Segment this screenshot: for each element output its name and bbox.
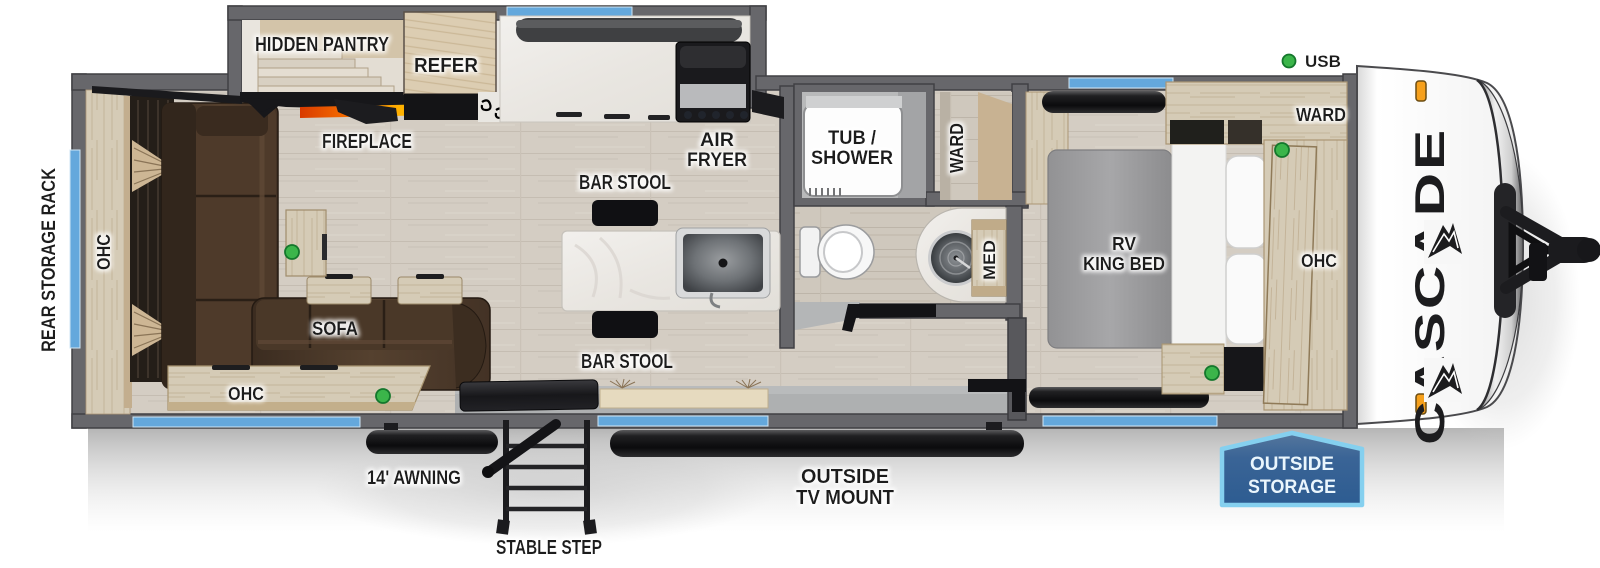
svg-text:OHC: OHC — [1301, 251, 1337, 271]
svg-text:BAR STOOL: BAR STOOL — [581, 351, 673, 373]
svg-text:STORAGE: STORAGE — [1248, 477, 1336, 498]
svg-text:BAR STOOL: BAR STOOL — [579, 172, 671, 194]
svg-text:WARD: WARD — [1296, 105, 1346, 125]
svg-text:14' AWNING: 14' AWNING — [367, 468, 461, 489]
svg-text:TUB /: TUB / — [828, 128, 877, 149]
svg-text:OHC: OHC — [228, 384, 264, 404]
svg-text:REFER: REFER — [414, 55, 479, 77]
svg-text:OUTSIDE: OUTSIDE — [1250, 454, 1334, 475]
svg-text:REAR STORAGE RACK: REAR STORAGE RACK — [39, 168, 60, 352]
svg-text:STABLE STEP: STABLE STEP — [496, 537, 602, 559]
svg-text:AIR: AIR — [700, 130, 734, 151]
svg-text:TV MOUNT: TV MOUNT — [796, 487, 894, 509]
svg-text:RV: RV — [1112, 234, 1136, 254]
svg-text:USB: USB — [1305, 52, 1341, 71]
svg-text:KING BED: KING BED — [1083, 254, 1165, 274]
svg-text:FRYER: FRYER — [687, 150, 747, 171]
svg-text:SHOWER: SHOWER — [811, 148, 893, 169]
svg-text:OHC: OHC — [94, 234, 114, 270]
svg-text:MED: MED — [980, 240, 999, 280]
svg-text:HIDDEN PANTRY: HIDDEN PANTRY — [255, 34, 390, 56]
svg-text:WARD: WARD — [947, 123, 967, 173]
svg-text:SOFA: SOFA — [312, 319, 358, 340]
svg-text:OUTSIDE: OUTSIDE — [801, 466, 889, 488]
svg-text:FIREPLACE: FIREPLACE — [322, 131, 412, 153]
